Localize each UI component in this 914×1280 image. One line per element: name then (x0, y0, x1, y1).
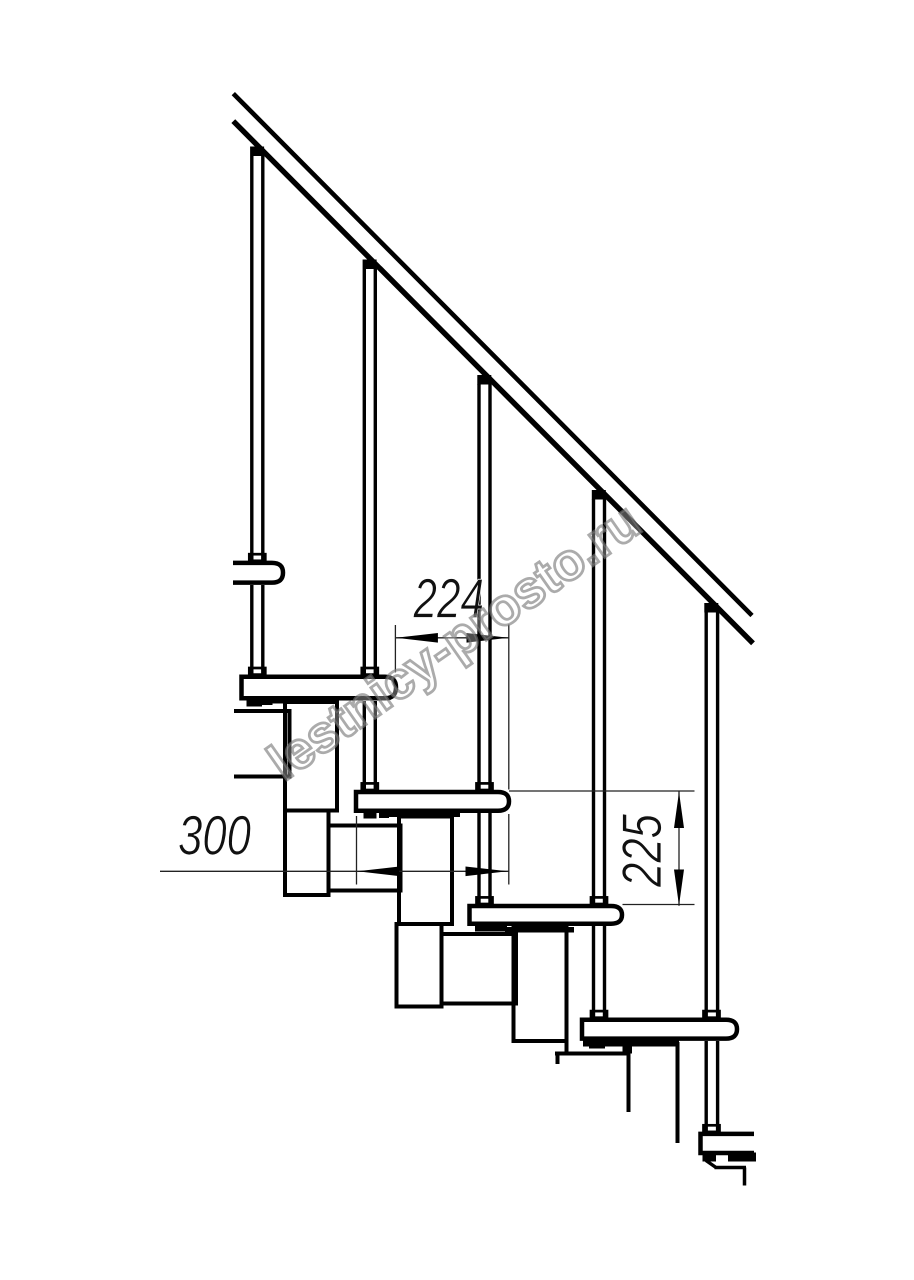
svg-text:300: 300 (178, 805, 251, 867)
svg-text:225: 225 (610, 813, 673, 887)
